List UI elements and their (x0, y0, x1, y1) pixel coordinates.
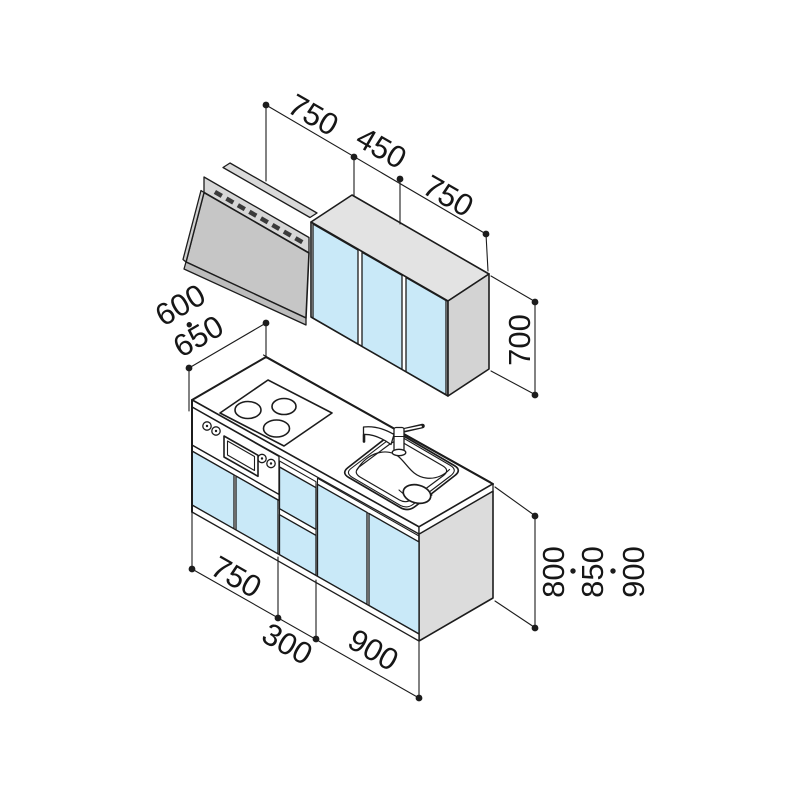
dim-extension-line (491, 276, 534, 301)
faucet-base (392, 449, 406, 455)
dim-label-counter-height-800: 800 (536, 546, 571, 598)
dim-extension-line (495, 487, 534, 515)
dim-label-counter-height-900: 900 (616, 546, 651, 598)
dim-dot (532, 392, 539, 399)
dim-dot (351, 154, 358, 161)
diagram-root: 750 450 750 600 650 (149, 87, 651, 702)
dim-extension-line (491, 371, 534, 394)
dim-label-base-width-300: 300 (256, 616, 318, 672)
dim-dot (532, 513, 539, 520)
dim-dot (416, 695, 423, 702)
dim-dot (263, 102, 270, 109)
isometric-kitchen-drawing: 750 450 750 600 650 (0, 0, 800, 800)
dim-label-wall-height: 700 (502, 314, 537, 366)
knob-center-dot (270, 462, 272, 464)
dim-dot (397, 176, 404, 183)
dim-dot (263, 320, 270, 327)
dim-counter-height: 800 850 900 (495, 487, 651, 631)
dim-label-base-width-900: 900 (342, 622, 404, 678)
kitchen-dimension-diagram: 750 450 750 600 650 (0, 0, 800, 800)
burner (235, 402, 261, 419)
separator-dot (610, 568, 615, 573)
dim-extension-line (486, 234, 488, 271)
dim-dot (189, 566, 196, 573)
dim-dot (483, 231, 490, 238)
wall-cabinets (311, 195, 489, 396)
dim-dot (532, 299, 539, 306)
dim-label-top-width-middle: 450 (350, 120, 412, 176)
burner (272, 399, 296, 415)
base-unit (192, 355, 493, 641)
dim-dot (186, 365, 193, 372)
burner (264, 420, 290, 437)
knob-center-dot (261, 457, 263, 459)
dim-label-top-width-left: 750 (282, 87, 344, 143)
dim-label-top-width-right: 750 (417, 168, 479, 224)
knob-center-dot (215, 430, 217, 432)
dim-label-base-width-750: 750 (205, 549, 267, 605)
dim-extension-line (495, 601, 534, 627)
dim-dot (532, 625, 539, 632)
dim-wall-height: 700 (491, 276, 538, 398)
dim-label-counter-height-850: 850 (575, 546, 610, 598)
knob-center-dot (206, 425, 208, 427)
